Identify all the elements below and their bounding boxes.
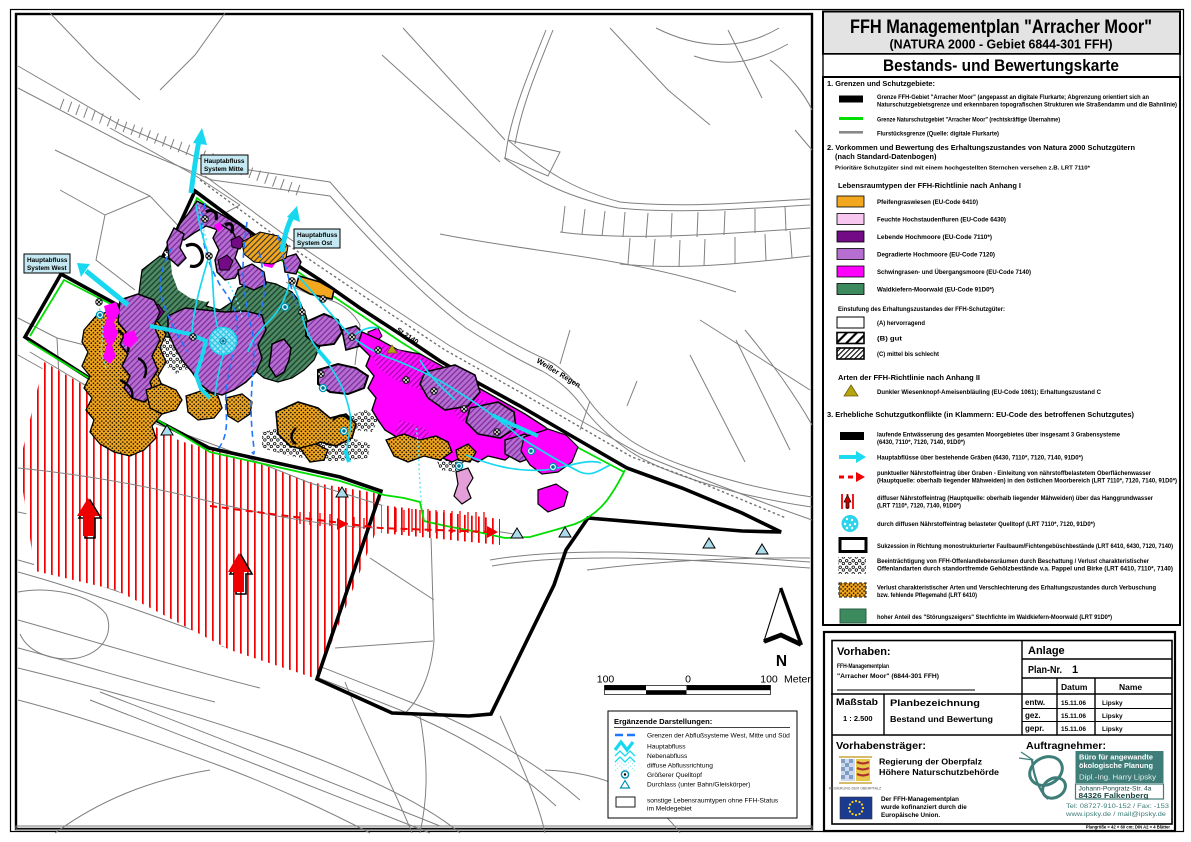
svg-text:Größerer Quelltopf: Größerer Quelltopf	[647, 772, 702, 779]
svg-text:wurde kofinanziert durch die: wurde kofinanziert durch die	[880, 804, 967, 811]
svg-text:Vorhabensträger:: Vorhabensträger:	[836, 740, 926, 752]
svg-text:100: 100	[760, 674, 778, 686]
svg-text:Verlust charakteristischer Art: Verlust charakteristischer Arten und Ver…	[877, 586, 1156, 592]
svg-text:Naturschutzgebietsgrenze und e: Naturschutzgebietsgrenze und erkennbaren…	[877, 103, 1177, 109]
svg-text:Anlage: Anlage	[1028, 645, 1065, 657]
svg-text:Höhere Naturschutzbehörde: Höhere Naturschutzbehörde	[879, 767, 999, 777]
svg-text:15.11.06: 15.11.06	[1061, 700, 1086, 707]
svg-text:(C) mittel bis schlecht: (C) mittel bis schlecht	[877, 352, 939, 358]
svg-text:Prioritäre Schutzgüter sind mi: Prioritäre Schutzgüter sind mit einem ho…	[835, 166, 1091, 172]
svg-text:Plan-Nr.: Plan-Nr.	[1028, 665, 1062, 676]
svg-text:Offenlandarten durch standortf: Offenlandarten durch standortfremde Gehö…	[877, 567, 1173, 573]
svg-text:Waldkiefern-Moorwald (EU-Code: Waldkiefern-Moorwald (EU-Code 91D0*)	[877, 288, 994, 294]
svg-text:punktueller Nährstoffeintrag ü: punktueller Nährstoffeintrag über Graben…	[877, 471, 1152, 477]
svg-text:Datum: Datum	[1061, 682, 1088, 692]
svg-text:Lipsky: Lipsky	[1102, 726, 1123, 733]
svg-text:15.11.06: 15.11.06	[1061, 726, 1086, 733]
svg-text:diffuser Nährstoffeintrag (Hau: diffuser Nährstoffeintrag (Hauptquelle: …	[877, 496, 1154, 502]
svg-text:15.11.06: 15.11.06	[1061, 713, 1086, 720]
svg-text:REGIERUNG DER OBERPFALZ: REGIERUNG DER OBERPFALZ	[829, 787, 882, 791]
svg-text:Arten der FFH-Richtlinie nach: Arten der FFH-Richtlinie nach Anhang II	[838, 375, 980, 382]
svg-text:(B) gut: (B) gut	[877, 337, 902, 343]
svg-text:Hauptabflüsse über bestehende: Hauptabflüsse über bestehende Gräben (64…	[877, 456, 1083, 462]
svg-text:1. Grenzen und Schutzgebiete:: 1. Grenzen und Schutzgebiete:	[827, 79, 935, 88]
svg-text:System Ost: System Ost	[297, 240, 333, 247]
svg-text:System Mitte: System Mitte	[204, 166, 244, 173]
svg-text:Tel: 08727-910-152 / Fax: -153: Tel: 08727-910-152 / Fax: -153	[1066, 803, 1169, 810]
svg-text:Grenze FFH-Gebiet "Arracher Mo: Grenze FFH-Gebiet "Arracher Moor" (angep…	[877, 95, 1149, 101]
svg-text:100: 100	[597, 674, 615, 686]
svg-text:Grenzen der Abflußsysteme West: Grenzen der Abflußsysteme West, Mitte un…	[647, 733, 790, 740]
svg-text:gez.: gez.	[1025, 711, 1041, 720]
svg-text:bzw. fehlende Pflegemahd (LRT: bzw. fehlende Pflegemahd (LRT 6410)	[877, 593, 977, 599]
svg-text:Bestand und Bewertung: Bestand und Bewertung	[890, 715, 993, 724]
svg-text:(A) hervorragend: (A) hervorragend	[877, 321, 925, 327]
svg-text:Hauptabfluss: Hauptabfluss	[647, 744, 686, 751]
svg-text:Schwingrasen- und Übergangsmoo: Schwingrasen- und Übergangsmoore (EU-Cod…	[877, 269, 1031, 276]
svg-text:0: 0	[685, 674, 691, 686]
svg-text:Lebende Hochmoore (EU-Code 711: Lebende Hochmoore (EU-Code 7110*)	[877, 235, 992, 241]
svg-text:(6430, 7110*, 7120, 7140, 91D0: (6430, 7110*, 7120, 7140, 91D0*)	[877, 440, 965, 446]
svg-text:durch diffusen Nährstoffeintra: durch diffusen Nährstoffeintrag belastet…	[877, 522, 1095, 528]
svg-text:Dunkler Wiesenknopf-Ameisenblä: Dunkler Wiesenknopf-Ameisenbläuling (EU-…	[877, 390, 1102, 396]
svg-text:FFH Managementplan "Arracher M: FFH Managementplan "Arracher Moor"	[850, 17, 1152, 38]
svg-text:3. Erhebliche Schutzgutkonflik: 3. Erhebliche Schutzgutkonflikte (in Kla…	[827, 410, 1135, 419]
svg-text:Europäische Union.: Europäische Union.	[881, 812, 940, 819]
svg-text:Degradierte Hochmoore (EU-Code: Degradierte Hochmoore (EU-Code 7120)	[877, 253, 995, 259]
svg-text:Planbezeichnung: Planbezeichnung	[890, 698, 980, 709]
svg-text:Vorhaben:: Vorhaben:	[837, 646, 891, 658]
svg-text:(Hauptquelle: oberhalb liegend: (Hauptquelle: oberhalb liegender Mähweid…	[877, 479, 1177, 485]
svg-text:1: 1	[1072, 664, 1078, 676]
svg-text:(nach Standard-Datenbogen): (nach Standard-Datenbogen)	[835, 152, 937, 161]
svg-text:84326 Falkenberg: 84326 Falkenberg	[1079, 791, 1150, 800]
svg-text:sonstige Lebensraumtypen ohne: sonstige Lebensraumtypen ohne FFH-Status	[647, 798, 779, 805]
svg-text:Sukzession in Richtung monostr: Sukzession in Richtung monostrukturierte…	[877, 544, 1173, 550]
svg-text:Einstufung des Erhaltungszusta: Einstufung des Erhaltungszustandes der F…	[838, 306, 1005, 313]
svg-text:N: N	[776, 653, 787, 670]
svg-text:System West: System West	[27, 265, 68, 272]
svg-text:ökologische Planung: ökologische Planung	[1079, 761, 1153, 770]
svg-text:www.ipsky.de / mail@ipsky.de: www.ipsky.de / mail@ipsky.de	[1065, 811, 1166, 818]
svg-text:2. Vorkommen und Bewertung des: 2. Vorkommen und Bewertung des Erhaltung…	[827, 143, 1135, 152]
svg-text:Plangröße = 42 × 60 cm; DIN A2: Plangröße = 42 × 60 cm; DIN A2 = 4 Blätt…	[1086, 825, 1171, 830]
svg-text:gepr.: gepr.	[1025, 724, 1044, 733]
svg-text:Hauptabfluss: Hauptabfluss	[204, 158, 245, 165]
svg-text:1 : 2.500: 1 : 2.500	[843, 714, 873, 723]
svg-text:laufende Entwässerung des gesa: laufende Entwässerung des gesamten Moorg…	[877, 433, 1121, 439]
svg-text:Grenze Naturschutzgebiet "Arra: Grenze Naturschutzgebiet "Arracher Moor"…	[877, 117, 1060, 124]
svg-text:"Arracher Moor" (6844-301 FFH): "Arracher Moor" (6844-301 FFH)	[837, 673, 939, 680]
svg-text:Durchlass (unter Bahn/Gleiskör: Durchlass (unter Bahn/Gleiskörper)	[647, 782, 750, 789]
svg-text:Meter: Meter	[784, 674, 811, 686]
svg-text:Auftragnehmer:: Auftragnehmer:	[1026, 740, 1106, 752]
svg-text:Pfeifengraswiesen (EU-Code 641: Pfeifengraswiesen (EU-Code 6410)	[877, 200, 978, 206]
svg-text:diffuse Abflussrichtung: diffuse Abflussrichtung	[647, 763, 713, 770]
svg-text:Der FFH-Managementplan: Der FFH-Managementplan	[881, 796, 959, 803]
svg-text:Beeinträchtigung von FFH-Offen: Beeinträchtigung von FFH-Offenlandlebens…	[877, 559, 1150, 565]
svg-text:(NATURA 2000 - Gebiet 6844-301: (NATURA 2000 - Gebiet 6844-301 FFH)	[890, 37, 1113, 52]
svg-text:Maßstab: Maßstab	[836, 697, 878, 708]
svg-text:Name: Name	[1119, 682, 1142, 692]
svg-text:im Meldegebiet: im Meldegebiet	[647, 806, 692, 813]
svg-text:entw.: entw.	[1025, 698, 1045, 707]
svg-text:Feuchte Hochstaudenfluren (EU-: Feuchte Hochstaudenfluren (EU-Code 6430)	[877, 218, 1006, 224]
svg-text:Bestands- und Bewertungskarte: Bestands- und Bewertungskarte	[883, 56, 1119, 75]
svg-text:Dipl.-Ing. Harry Lipsky: Dipl.-Ing. Harry Lipsky	[1079, 773, 1156, 782]
svg-text:Hauptabfluss: Hauptabfluss	[297, 232, 338, 239]
svg-text:Nebenabfluss: Nebenabfluss	[647, 753, 688, 760]
svg-text:Flurstücksgrenze (Quelle: digi: Flurstücksgrenze (Quelle: digitale Flurk…	[877, 132, 999, 138]
svg-text:Lebensraumtypen der FFH-Richtl: Lebensraumtypen der FFH-Richtlinie nach …	[838, 183, 1021, 190]
svg-text:(LRT 7110*, 7120, 7140, 91D0*): (LRT 7110*, 7120, 7140, 91D0*)	[877, 504, 961, 510]
svg-text:FFH-Managementplan: FFH-Managementplan	[837, 663, 889, 670]
svg-text:hoher Anteil des "Störungszeig: hoher Anteil des "Störungszeigers" Stech…	[877, 615, 1112, 621]
svg-text:Lipsky: Lipsky	[1102, 700, 1123, 707]
svg-text:Lipsky: Lipsky	[1102, 713, 1123, 720]
svg-text:Hauptabfluss: Hauptabfluss	[27, 257, 68, 264]
svg-text:Regierung der Oberpfalz: Regierung der Oberpfalz	[879, 757, 982, 767]
svg-text:Ergänzende Darstellungen:: Ergänzende Darstellungen:	[614, 717, 712, 726]
